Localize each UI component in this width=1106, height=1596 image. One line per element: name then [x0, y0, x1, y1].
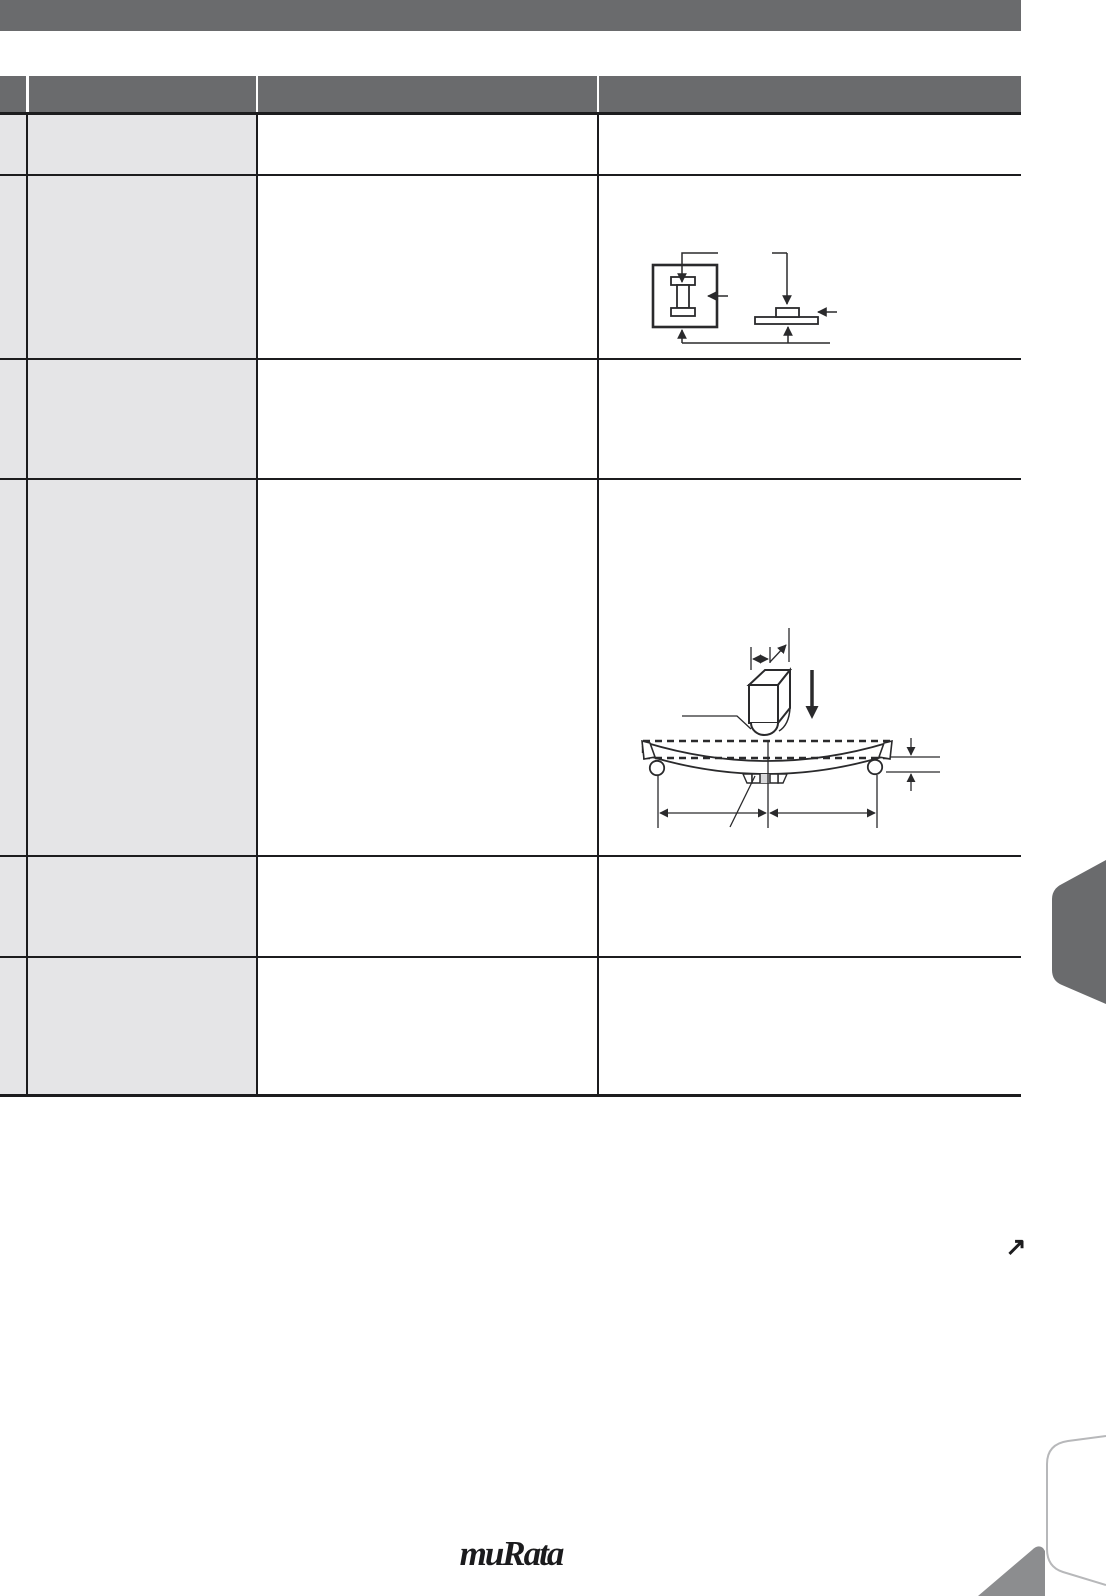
side-index-tab	[1045, 852, 1106, 1012]
row-method-cell	[598, 360, 1021, 478]
row-spec-cell	[257, 480, 598, 855]
header-cell	[599, 76, 1022, 112]
row-spec-cell	[257, 115, 598, 174]
row-spec-cell	[257, 857, 598, 956]
grid-line	[0, 358, 1021, 360]
row-spec-cell	[257, 958, 598, 1094]
row-method-cell	[598, 857, 1021, 956]
top-banner	[0, 0, 1021, 31]
row-spec-cell	[257, 176, 598, 358]
row-index-cell	[0, 857, 28, 956]
header-cell	[258, 76, 597, 112]
row-index-cell	[0, 958, 28, 1094]
grid-line	[0, 478, 1021, 480]
grid-line	[256, 112, 258, 1097]
row-label-cell	[28, 176, 257, 358]
row-label-cell	[28, 115, 257, 174]
row-index-cell	[0, 115, 28, 174]
row-label-cell	[28, 958, 257, 1094]
row-label-cell	[28, 480, 257, 855]
grid-line	[0, 1094, 1021, 1097]
continued-arrow-icon: ↗	[1001, 1233, 1031, 1263]
row-spec-cell	[257, 360, 598, 478]
chip-push-test-diagram	[630, 240, 850, 352]
grid-line	[26, 112, 28, 1097]
row-label-cell	[28, 360, 257, 478]
grid-line	[597, 112, 599, 1097]
grid-line	[0, 174, 1021, 176]
corner-accent-triangle	[975, 1540, 1106, 1596]
datasheet-page: ↗ muRata	[0, 0, 1106, 1596]
board-flex-test-diagram	[630, 615, 950, 835]
grid-line	[0, 112, 1021, 115]
header-cell	[0, 76, 26, 112]
row-index-cell	[0, 176, 28, 358]
row-label-cell	[28, 857, 257, 956]
row-index-cell	[0, 360, 28, 478]
row-index-cell	[0, 480, 28, 855]
row-method-cell	[598, 115, 1021, 174]
murata-logo: muRata	[440, 1534, 582, 1574]
side-tab-shape	[1052, 860, 1106, 1004]
grid-line	[0, 855, 1021, 857]
row-method-cell	[598, 958, 1021, 1094]
header-cell	[29, 76, 256, 112]
grid-line	[0, 956, 1021, 958]
